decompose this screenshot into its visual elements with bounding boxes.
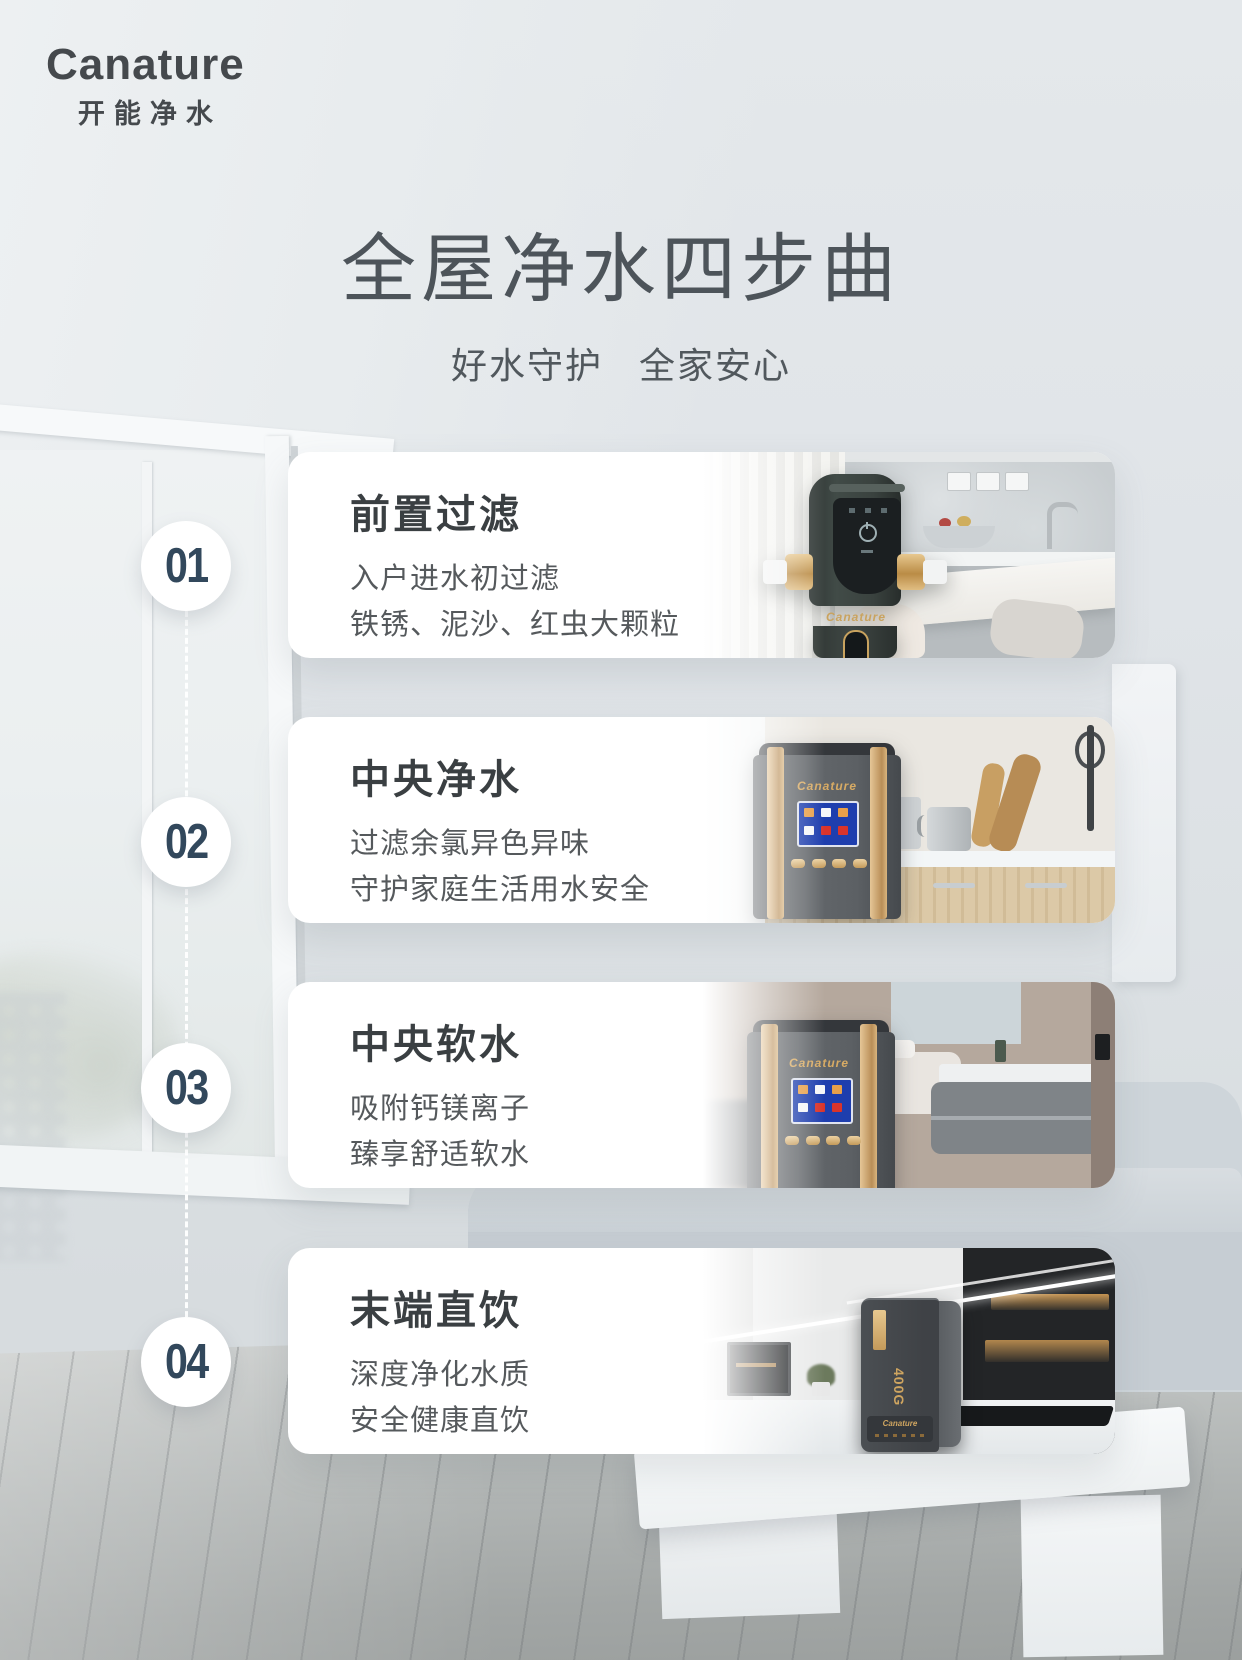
product-photo-central-purifier: Canature xyxy=(695,717,1115,923)
card-line: 安全健康直饮 xyxy=(350,1398,530,1444)
device-logo: Canature xyxy=(861,1419,939,1428)
faucet xyxy=(1047,502,1078,549)
step-connector-line xyxy=(185,566,188,1362)
brand-chinese-name: 开能净水 xyxy=(46,92,245,131)
power-icon xyxy=(859,524,877,542)
step-circle-1: 01 xyxy=(141,521,231,611)
card-line: 守护家庭生活用水安全 xyxy=(350,867,650,913)
brand-logo: Canature 开能净水 xyxy=(46,40,245,131)
step-card-drinking: 末端直饮 深度净化水质 安全健康直饮 400G Cana xyxy=(288,1248,1115,1454)
poster-root: Canature 开能净水 全屋净水四步曲 好水守护 全家安心 01 02 03… xyxy=(0,0,1242,1660)
card-title: 末端直饮 xyxy=(350,1278,530,1336)
page-title: 全屋净水四步曲 xyxy=(0,208,1242,317)
step-circle-2: 02 xyxy=(141,797,231,887)
page-subtitle: 好水守护 全家安心 xyxy=(0,337,1242,389)
product-photo-drinking: 400G Canature xyxy=(695,1248,1115,1454)
faucet xyxy=(1087,725,1094,831)
step-card-prefilter: 前置过滤 入户进水初过滤 铁锈、泥沙、红虫大颗粒 xyxy=(288,452,1115,658)
product-photo-softener: Canature xyxy=(695,982,1115,1188)
card-line: 臻享舒适软水 xyxy=(350,1132,530,1178)
step-circle-4: 04 xyxy=(141,1317,231,1407)
card-line: 入户进水初过滤 xyxy=(350,556,680,602)
brass-fitting xyxy=(897,554,925,590)
ro-device: 400G Canature xyxy=(861,1298,961,1450)
device-capacity-label: 400G xyxy=(855,1368,907,1392)
card-title: 前置过滤 xyxy=(350,482,680,540)
card-line: 深度净化水质 xyxy=(350,1352,530,1398)
card-line: 铁锈、泥沙、红虫大颗粒 xyxy=(350,602,680,648)
step-circle-3: 03 xyxy=(141,1043,231,1133)
heading-block: 全屋净水四步曲 好水守护 全家安心 xyxy=(0,208,1242,389)
card-line: 吸附钙镁离子 xyxy=(350,1086,530,1132)
step-card-softener: 中央软水 吸附钙镁离子 臻享舒适软水 Canature xyxy=(288,982,1115,1188)
brand-name: Canature xyxy=(46,40,245,90)
card-line: 过滤余氯异色异味 xyxy=(350,821,650,867)
step-card-central-purifier: 中央净水 过滤余氯异色异味 守护家庭生活用水安全 Canature xyxy=(288,717,1115,923)
product-photo-prefilter: Canature xyxy=(695,452,1115,658)
card-title: 中央净水 xyxy=(350,747,650,805)
card-title: 中央软水 xyxy=(350,1012,530,1070)
